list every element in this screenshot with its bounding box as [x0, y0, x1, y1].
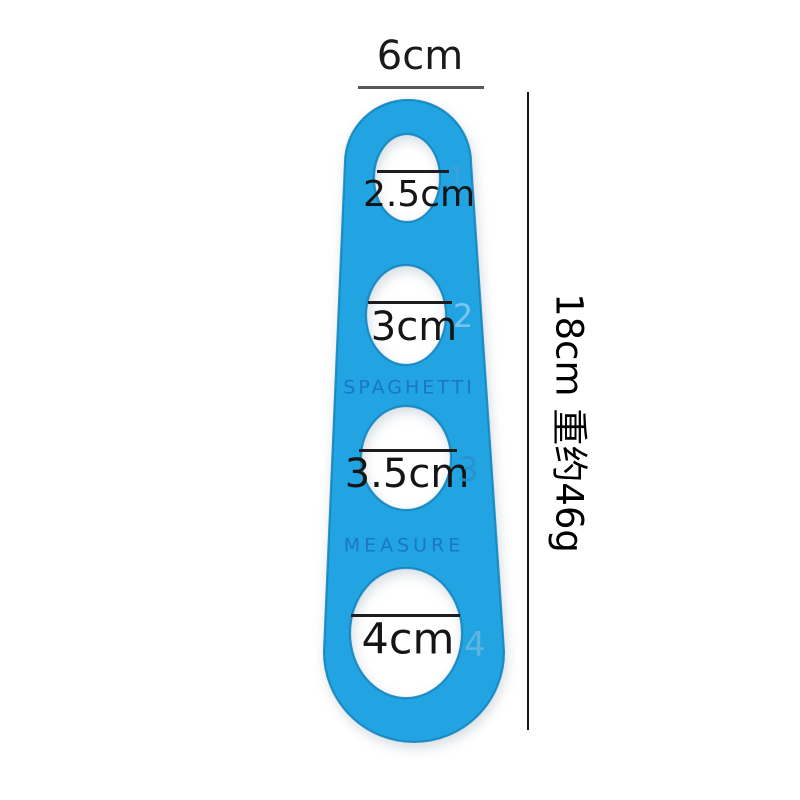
hole-2-diameter-label: 3cm [371, 307, 457, 347]
portion-number-1-engraving: 1 [449, 164, 466, 190]
spaghetti-engraving: SPAGHETTI [343, 379, 474, 398]
product-image: 6cm 18cm 重约46g 2.5cm 3cm 3.5cm 4cm 1 2 3… [0, 0, 800, 800]
measure-engraving: MEASURE [344, 537, 465, 556]
measuring-tool-graphic [0, 0, 800, 800]
portion-number-3-engraving: 3 [457, 453, 479, 487]
length-dimension-line [527, 92, 529, 730]
width-dimension-line [358, 86, 484, 89]
portion-number-2-engraving: 2 [453, 300, 473, 332]
width-dimension-label: 6cm [377, 36, 463, 76]
hole-3-diameter-label: 3.5cm [345, 454, 470, 494]
length-weight-dimension-label: 18cm 重约46g [551, 293, 588, 553]
portion-number-4-engraving: 4 [464, 628, 486, 662]
hole-4-diameter-label: 4cm [362, 619, 455, 662]
hole-1-measure-line [377, 170, 449, 173]
